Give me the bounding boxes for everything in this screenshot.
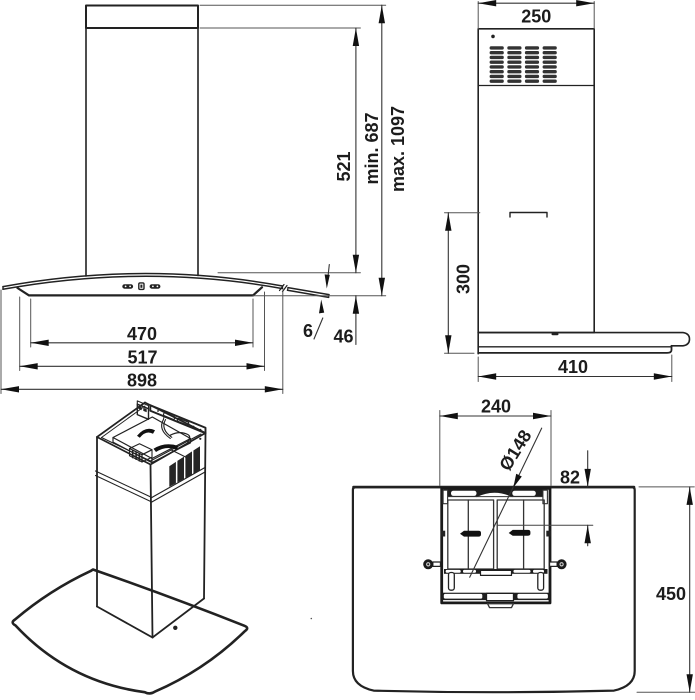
svg-text:517: 517 xyxy=(127,347,157,367)
svg-text:521: 521 xyxy=(334,151,354,181)
svg-text:46: 46 xyxy=(333,327,353,347)
svg-text:min. 687: min. 687 xyxy=(362,112,382,184)
svg-text:300: 300 xyxy=(453,264,473,294)
svg-text:6: 6 xyxy=(303,321,313,341)
svg-text:470: 470 xyxy=(127,324,157,344)
svg-text:250: 250 xyxy=(521,7,551,27)
svg-text:max. 1097: max. 1097 xyxy=(388,106,408,192)
svg-text:Ø148: Ø148 xyxy=(495,426,535,474)
svg-text:410: 410 xyxy=(558,357,588,377)
svg-text:82: 82 xyxy=(560,467,580,487)
svg-text:898: 898 xyxy=(127,370,157,390)
svg-text:450: 450 xyxy=(656,584,686,604)
svg-text:240: 240 xyxy=(481,397,511,417)
